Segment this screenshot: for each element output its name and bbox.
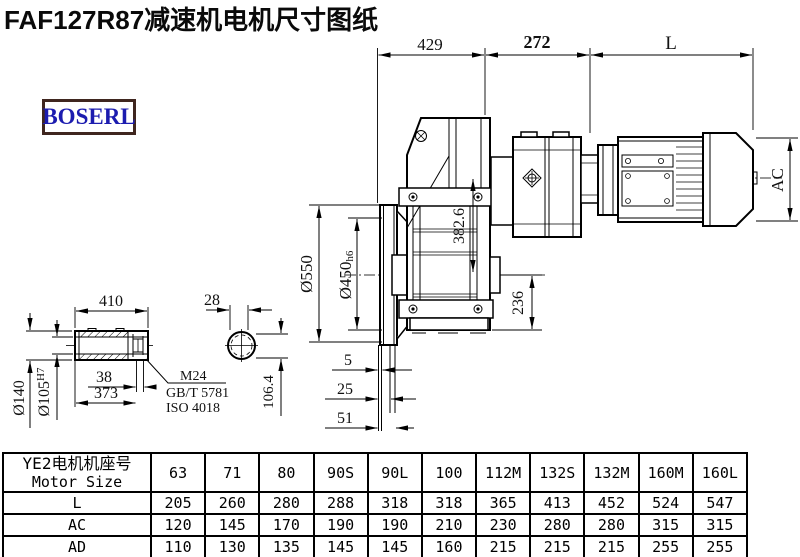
label-gbt5781: GB/T 5781 xyxy=(166,386,229,401)
dimension-28: 28 xyxy=(204,292,272,330)
label-m24: M24 xyxy=(180,369,206,384)
gearbox-housing xyxy=(399,118,500,333)
dimension-38-373: 38 373 xyxy=(75,360,152,407)
dim-38: 38 xyxy=(96,369,112,386)
hollow-shaft-detail: 410 Ø140 Ø105H7 xyxy=(11,293,229,428)
cell: 255 xyxy=(639,536,693,557)
cell: 170 xyxy=(259,514,313,536)
cell: 120 xyxy=(151,514,205,536)
cell: 205 xyxy=(151,492,205,514)
dim-429: 429 xyxy=(417,35,443,54)
size-col-90s: 90S xyxy=(314,453,368,492)
dim-140: Ø140 xyxy=(11,380,28,416)
cell: 160 xyxy=(422,536,476,557)
cell: 190 xyxy=(314,514,368,536)
dim-28: 28 xyxy=(204,292,220,309)
dim-382-6: 382.6 xyxy=(451,208,468,244)
size-col-112m: 112M xyxy=(476,453,530,492)
output-boss xyxy=(490,257,500,293)
header-motor-size-en: Motor Size xyxy=(4,473,150,491)
cell: 280 xyxy=(530,514,584,536)
row-label-L: L xyxy=(3,492,151,514)
size-col-63: 63 xyxy=(151,453,205,492)
coupling xyxy=(581,155,598,203)
dim-410: 410 xyxy=(99,293,123,310)
dimension-450h6: Ø450h6 xyxy=(336,218,382,330)
cell: 190 xyxy=(368,514,422,536)
cell: 215 xyxy=(530,536,584,557)
size-col-160m: 160M xyxy=(639,453,693,492)
cell: 135 xyxy=(259,536,313,557)
dim-373: 373 xyxy=(94,385,118,402)
bolt-spec-leader: M24 GB/T 5781 ISO 4018 xyxy=(146,359,229,416)
dimension-AC: AC xyxy=(756,138,798,221)
row-label-AD: AD xyxy=(3,536,151,557)
cell: 452 xyxy=(584,492,638,514)
dim-L: L xyxy=(665,33,677,54)
cell: 145 xyxy=(368,536,422,557)
cell: 524 xyxy=(639,492,693,514)
cell: 315 xyxy=(639,514,693,536)
cell: 280 xyxy=(259,492,313,514)
dim-236: 236 xyxy=(510,291,527,315)
size-col-71: 71 xyxy=(205,453,259,492)
cell: 365 xyxy=(476,492,530,514)
main-view: 429 272 L AC Ø550 xyxy=(297,32,798,431)
size-col-100: 100 xyxy=(422,453,476,492)
motor-adapter xyxy=(491,132,598,237)
dimension-106-4: 106.4 xyxy=(256,318,288,416)
dim-5: 5 xyxy=(344,352,352,369)
cell: 413 xyxy=(530,492,584,514)
cell: 230 xyxy=(476,514,530,536)
cell: 215 xyxy=(476,536,530,557)
size-col-132m: 132M xyxy=(584,453,638,492)
dim-25: 25 xyxy=(337,381,353,398)
size-col-80: 80 xyxy=(259,453,313,492)
table-row-L: L 205 260 280 288 318 318 365 413 452 52… xyxy=(3,492,747,514)
cell: 145 xyxy=(205,514,259,536)
motor-flange xyxy=(598,145,618,215)
size-col-90l: 90L xyxy=(368,453,422,492)
technical-drawing: 429 272 L AC Ø550 xyxy=(0,0,800,450)
cell: 110 xyxy=(151,536,205,557)
cell: 255 xyxy=(693,536,747,557)
dim-105H7: Ø105H7 xyxy=(35,367,53,417)
cell: 547 xyxy=(693,492,747,514)
label-iso4018: ISO 4018 xyxy=(166,401,220,416)
cell: 280 xyxy=(584,514,638,536)
dim-106-4: 106.4 xyxy=(261,375,277,409)
motor xyxy=(598,133,757,226)
header-motor-size-cn: YE2电机机座号 xyxy=(4,454,150,473)
shaft-boss xyxy=(392,255,407,295)
cell: 145 xyxy=(314,536,368,557)
dimension-105H7: Ø105H7 xyxy=(35,320,73,420)
motor-body xyxy=(618,137,703,222)
dimension-5-25-51: 5 25 51 xyxy=(325,352,416,428)
header-motor-size: YE2电机机座号 Motor Size xyxy=(3,453,151,492)
table-row-AC: AC 120 145 170 190 190 210 230 280 280 3… xyxy=(3,514,747,536)
dim-550: Ø550 xyxy=(297,255,316,293)
cell: 260 xyxy=(205,492,259,514)
size-col-160l: 160L xyxy=(693,453,747,492)
motor-size-table: YE2电机机座号 Motor Size 63 71 80 90S 90L 100… xyxy=(2,452,748,557)
dim-51: 51 xyxy=(337,410,353,427)
cell: 130 xyxy=(205,536,259,557)
cell: 318 xyxy=(368,492,422,514)
dim-450h6: Ø450h6 xyxy=(336,250,356,299)
table-header-row: YE2电机机座号 Motor Size 63 71 80 90S 90L 100… xyxy=(3,453,747,492)
table-row-AD: AD 110 130 135 145 145 160 215 215 215 2… xyxy=(3,536,747,557)
cell: 210 xyxy=(422,514,476,536)
cell: 318 xyxy=(422,492,476,514)
dim-272: 272 xyxy=(524,32,551,52)
cell: 315 xyxy=(693,514,747,536)
cell: 288 xyxy=(314,492,368,514)
row-label-AC: AC xyxy=(3,514,151,536)
dim-AC: AC xyxy=(768,168,787,192)
size-col-132s: 132S xyxy=(530,453,584,492)
cell: 215 xyxy=(584,536,638,557)
drawing-sheet: FAF127R87减速机电机尺寸图纸 BOSERL xyxy=(0,0,800,557)
dimension-410: 410 xyxy=(75,293,148,328)
gearbox-base xyxy=(410,318,488,330)
